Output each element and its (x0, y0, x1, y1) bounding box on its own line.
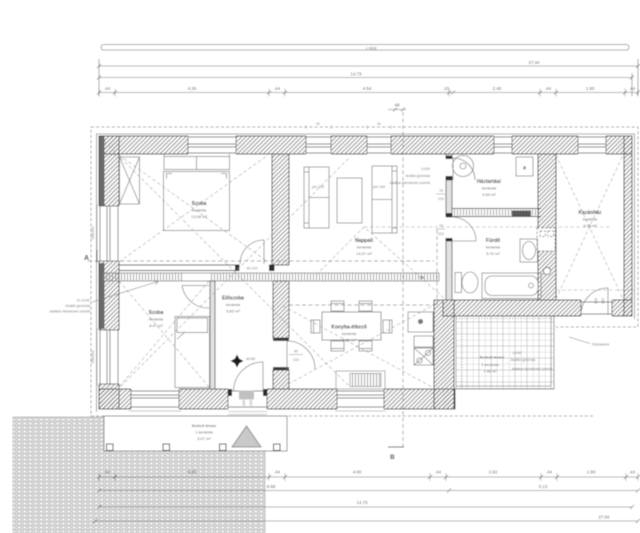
svg-text:B: B (390, 454, 395, 461)
svg-text:Díszkavics: Díszkavics (592, 343, 609, 347)
svg-text:.44: .44 (545, 86, 552, 91)
svg-text:pm 149: pm 149 (312, 185, 324, 189)
svg-text:90: 90 (294, 350, 298, 354)
svg-text:210: 210 (601, 298, 605, 304)
svg-text:150/240: 150/240 (91, 227, 95, 240)
svg-text:75: 75 (439, 189, 443, 193)
svg-text:U140: U140 (421, 167, 430, 171)
svg-text:.44: .44 (546, 470, 553, 475)
svg-text:.44: .44 (629, 86, 636, 91)
svg-text:statikai méretezés szerint: statikai méretezés szerint (512, 367, 553, 371)
svg-text:Előszoba: Előszoba (222, 296, 244, 302)
svg-text:1 0608: 1 0608 (366, 46, 377, 50)
svg-text:kerámia: kerámia (226, 302, 241, 307)
svg-text:kiváltó gerenda: kiváltó gerenda (406, 174, 430, 178)
svg-text:±0.00: ±0.00 (246, 357, 255, 361)
svg-text:Burkolt terasz: Burkolt terasz (192, 423, 216, 428)
svg-text:5.13: 5.13 (539, 484, 548, 489)
svg-text:Háztartási: Háztartási (477, 179, 502, 185)
svg-text:90 210: 90 210 (247, 267, 258, 271)
svg-text:27.44: 27.44 (529, 60, 541, 65)
svg-text:.44: .44 (274, 86, 281, 91)
svg-text:Kazánház: Kazánház (578, 210, 602, 216)
svg-text:statikai méretezés szerint: statikai méretezés szerint (389, 181, 430, 185)
svg-text:4.00: 4.00 (353, 470, 362, 475)
svg-text:pm 149: pm 149 (373, 185, 385, 189)
svg-text:9.68: 9.68 (267, 484, 276, 489)
svg-text:.10: .10 (443, 86, 450, 91)
svg-text:statikai méretezés szerint: statikai méretezés szerint (49, 310, 90, 314)
svg-text:U140: U140 (513, 351, 522, 355)
svg-text:2x U140: 2x U140 (77, 299, 90, 303)
svg-text:210: 210 (249, 400, 253, 406)
svg-text:210: 210 (438, 197, 444, 201)
svg-text:48: 48 (395, 103, 400, 108)
svg-text:Konyha-étkező: Konyha-étkező (331, 325, 367, 331)
svg-text:27.04: 27.04 (599, 515, 611, 520)
svg-text:7.46 m²: 7.46 m² (483, 369, 497, 374)
svg-text:14.07 m²: 14.07 m² (356, 251, 372, 256)
svg-text:3.07 m²: 3.07 m² (197, 436, 211, 441)
svg-text:1.90: 1.90 (586, 86, 595, 91)
svg-text:5.99 m²: 5.99 m² (482, 192, 496, 197)
svg-text:Szoba: Szoba (192, 201, 207, 207)
svg-text:60: 60 (377, 122, 381, 126)
svg-text:.44: .44 (274, 470, 281, 475)
svg-text:5.70 m²: 5.70 m² (486, 251, 500, 256)
svg-text:Fürdő: Fürdő (486, 238, 500, 244)
svg-text:.44: .44 (435, 470, 442, 475)
svg-text:210: 210 (293, 358, 299, 362)
svg-text:2.62: 2.62 (489, 470, 498, 475)
svg-text:kerámia: kerámia (149, 317, 164, 322)
svg-text:.44: .44 (104, 470, 111, 475)
svg-text:kerámia: kerámia (583, 217, 598, 222)
svg-text:Szoba: Szoba (149, 310, 164, 316)
svg-text:4.54: 4.54 (363, 86, 372, 91)
svg-text:9.16 m²: 9.16 m² (583, 223, 597, 228)
svg-text:1 kerámia: 1 kerámia (481, 362, 499, 367)
svg-text:kerámia: kerámia (482, 186, 497, 191)
svg-text:8.47 m²: 8.47 m² (149, 323, 163, 328)
svg-text:kerámia: kerámia (486, 245, 501, 250)
svg-text:4.26: 4.26 (188, 470, 197, 475)
svg-text:1 kerámia: 1 kerámia (195, 430, 213, 435)
svg-text:kiváltó gerenda: kiváltó gerenda (511, 358, 535, 362)
svg-text:.44: .44 (629, 470, 636, 475)
svg-text:13.08 m²: 13.08 m² (191, 214, 207, 219)
svg-text:75: 75 (439, 224, 443, 228)
svg-text:Burkolt terasz: Burkolt terasz (480, 355, 504, 360)
svg-text:210: 210 (438, 232, 444, 236)
svg-text:2.40: 2.40 (493, 86, 502, 91)
svg-text:150/240: 150/240 (91, 351, 95, 364)
svg-text:4.26: 4.26 (188, 86, 197, 91)
svg-text:9.80 m²: 9.80 m² (342, 338, 356, 343)
svg-text:kiváltó gerenda: kiváltó gerenda (66, 304, 90, 308)
svg-text:100: 100 (242, 400, 246, 406)
svg-text:60: 60 (316, 122, 320, 126)
svg-text:Nappali: Nappali (355, 238, 374, 244)
svg-text:.44: .44 (104, 86, 111, 91)
svg-text:kerámia: kerámia (192, 208, 207, 213)
svg-text:14.73: 14.73 (357, 500, 369, 505)
svg-text:100: 100 (594, 298, 598, 304)
svg-text:5.60 m²: 5.60 m² (226, 309, 240, 314)
svg-text:14.73: 14.73 (351, 72, 363, 77)
svg-text:1.90: 1.90 (587, 470, 596, 475)
svg-text:kerámia: kerámia (342, 331, 357, 336)
svg-text:kerámia: kerámia (357, 245, 372, 250)
svg-text:A: A (84, 255, 89, 262)
